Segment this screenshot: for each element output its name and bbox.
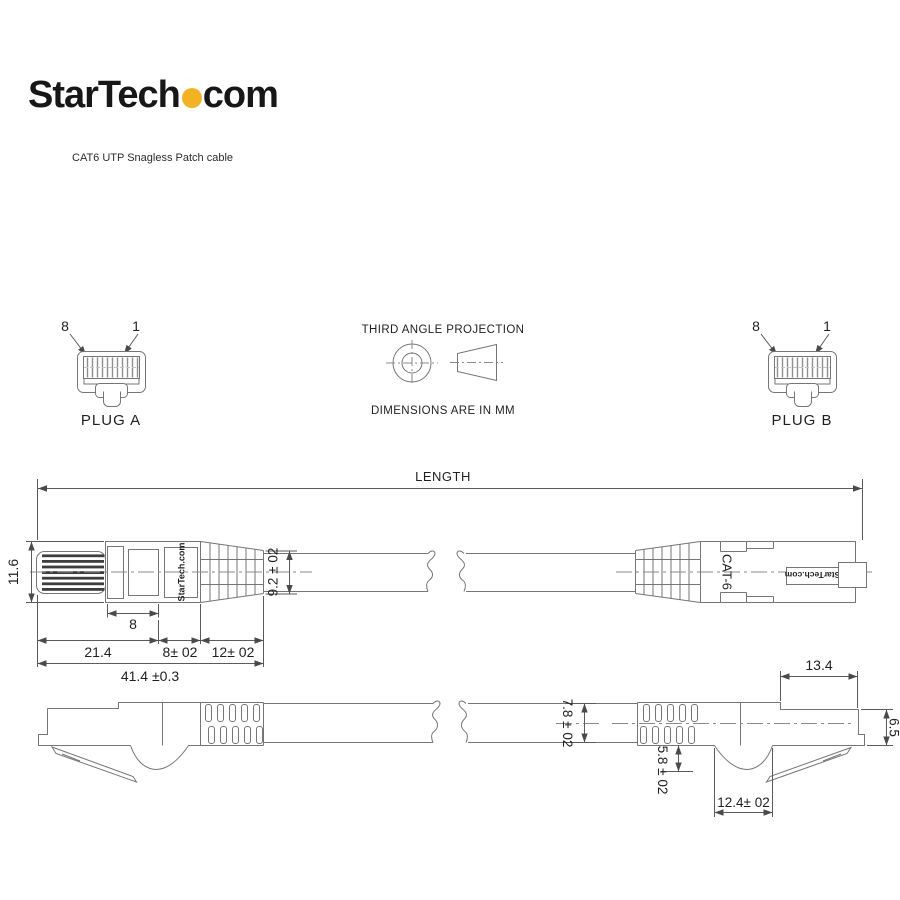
plug-a-pin1-label: 1	[132, 318, 140, 334]
plug-b-view: 8 1 PLUG B	[752, 318, 836, 429]
sv-right-hump	[701, 746, 773, 770]
projection-title: THIRD ANGLE PROJECTION	[362, 324, 525, 336]
sv-cable-left	[264, 704, 434, 743]
dim-hump-width: 12.4± 02	[715, 748, 773, 817]
sv-cable-break-left	[432, 701, 440, 743]
plug-a-view: 8 1 PLUG A	[61, 318, 145, 429]
length-dimension: LENGTH	[38, 469, 863, 540]
sv-cable-break-right	[459, 701, 467, 743]
plug-a-pin8-label: 8	[61, 318, 69, 334]
dim-8-02-text: 8± 02	[163, 644, 198, 660]
dim-plug-front-height: 6.5	[861, 710, 900, 746]
top-view-drawing: StarTech.com CAT-6 StarTech.com 11.6	[5, 542, 872, 685]
right-plug-tip	[839, 563, 867, 588]
left-brand-text: StarTech.com	[177, 543, 187, 602]
dim-segments: 21.4 8± 02 12± 02	[38, 595, 264, 667]
dim-6-5-text: 6.5	[887, 718, 900, 737]
right-body-bottom-notches	[721, 593, 774, 603]
dim-12-4-text: 12.4± 02	[717, 795, 769, 810]
sv-left-hump	[131, 746, 201, 770]
dim-21-4-text: 21.4	[84, 644, 111, 660]
dim-pin-zone: 8	[108, 604, 159, 632]
sv-left-top-edge	[48, 703, 201, 709]
plug-a-caption: PLUG A	[81, 412, 141, 429]
dim-5-8-text: 5.8 ± 02	[655, 746, 670, 795]
dim-41-4-text: 41.4 ±0.3	[121, 668, 179, 684]
drawing-sheet: StarTechcom CAT6 UTP Snagless Patch cabl…	[0, 0, 900, 900]
sv-left-boot-slots	[206, 705, 263, 744]
dim-7-8-text: 7.8 ± 02	[560, 699, 575, 748]
plug-b-caption: PLUG B	[771, 412, 832, 429]
sv-left-front-edge	[39, 709, 131, 746]
plug-b-latch-stem	[795, 392, 812, 407]
sv-right-latch	[767, 748, 852, 783]
units-note: DIMENSIONS ARE IN MM	[371, 405, 515, 417]
dim-total-length: 41.4 ±0.3	[38, 664, 264, 685]
length-label: LENGTH	[415, 469, 471, 484]
plug-a-latch-stem	[104, 392, 121, 407]
sv-right-top-edge	[701, 703, 859, 710]
dim-plug-front-length: 13.4	[781, 657, 858, 708]
dim-8-text: 8	[129, 616, 137, 632]
dim-11-6-text: 11.6	[5, 559, 21, 585]
technical-drawing: 8 1 PLUG A 8 1 PLUG B	[0, 0, 900, 900]
sv-left-latch	[52, 747, 137, 782]
dim-9-2-text: 9.2 ± 02	[266, 548, 281, 597]
dim-13-4-text: 13.4	[805, 657, 832, 673]
cable-break-right	[457, 551, 465, 592]
right-body-top-notches	[721, 542, 774, 552]
cable-top-right	[466, 554, 636, 592]
cable-marking-text: CAT-6	[720, 554, 735, 590]
dim-latch-depth: 5.8 ± 02	[655, 746, 693, 795]
plug-b-pin1-label: 1	[823, 318, 831, 334]
projection-symbol: THIRD ANGLE PROJECTION DIMENSIONS ARE IN…	[362, 324, 525, 417]
cable-break-left	[427, 551, 435, 592]
sv-right-front-edge	[773, 710, 865, 746]
plug-b-pin8-label: 8	[752, 318, 760, 334]
right-brand-text: StarTech.com	[784, 570, 840, 580]
dim-12-02-text: 12± 02	[212, 644, 255, 660]
